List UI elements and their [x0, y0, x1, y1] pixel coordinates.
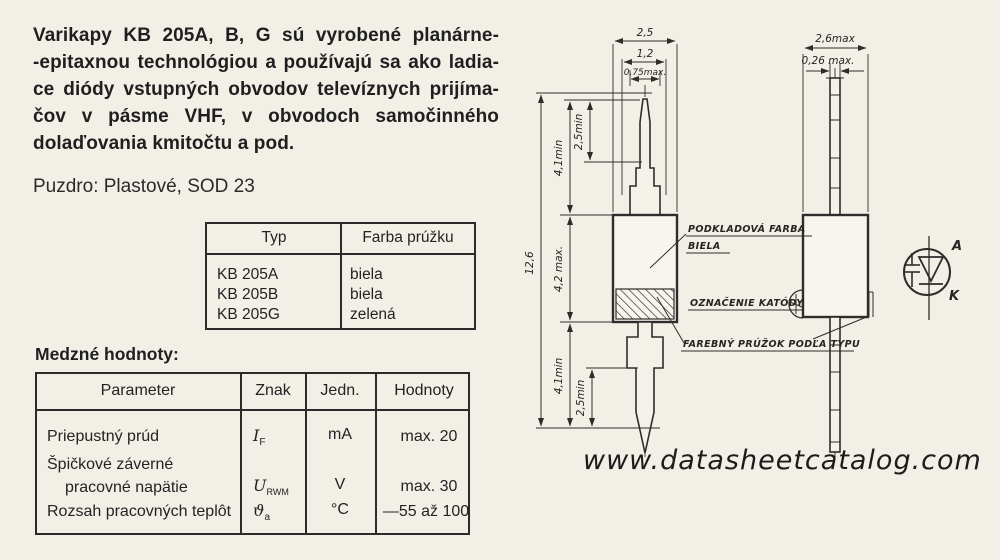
column-header-parameter: Parameter — [101, 382, 176, 400]
table-divider — [207, 253, 474, 255]
label-cathode-mark: OZNAČENIE KATÓDY — [690, 297, 804, 309]
symbol-base: U — [253, 476, 266, 495]
dim-4-1min-bottom: 4,1min — [553, 358, 565, 395]
unit-cell: mA — [328, 426, 352, 444]
cathode-label: K — [949, 289, 960, 304]
label-base-colour-line2: BIELA — [688, 241, 721, 252]
dim-4-2max: 4,2 max. — [553, 246, 565, 292]
symbol-subscript: F — [259, 437, 265, 448]
symbol-subscript: a — [264, 512, 270, 523]
type-table: Typ Farba prúžku KB 205A biela KB 205B b… — [205, 222, 476, 330]
value-cell: max. 30 — [401, 478, 458, 496]
parameter-cell: pracovné napätie — [65, 479, 188, 497]
dim-0-75max: 0,75max. — [624, 68, 667, 78]
stripe-edge — [869, 292, 873, 317]
limits-table: Parameter Znak Jedn. Hodnoty Priepustný … — [35, 372, 470, 535]
table-cell-typ: KB 205B — [217, 286, 278, 304]
dim-12-6: 12,6 — [524, 251, 536, 275]
package-line: Puzdro: Plastové, SOD 23 — [33, 176, 255, 198]
table-divider — [37, 409, 468, 411]
column-header-farba: Farba prúžku — [362, 229, 453, 247]
datasheet-page: Varikapy KB 205A, B, G sú vyrobené planá… — [0, 0, 1000, 560]
column-header-znak: Znak — [255, 382, 291, 400]
front-bottom-lead — [627, 322, 663, 453]
front-view — [613, 85, 677, 458]
front-colour-stripe — [616, 289, 674, 319]
side-top-lead — [830, 78, 840, 215]
table-divider — [340, 224, 342, 328]
watermark: www.datasheetcatalog.com — [583, 445, 982, 476]
diode-triangle — [919, 257, 943, 281]
intro-paragraph: Varikapy KB 205A, B, G sú vyrobené planá… — [33, 22, 499, 157]
anode-label: A — [951, 239, 962, 254]
table-divider — [240, 374, 242, 533]
front-top-lead — [630, 99, 660, 215]
dim-4-1min-top: 4,1min — [553, 140, 565, 177]
table-cell-farba: biela — [350, 286, 383, 304]
symbol-subscript: RWM — [266, 487, 288, 497]
intro-line: Varikapy KB 205A, B, G sú vyrobené planá… — [33, 22, 499, 49]
parameter-cell: Priepustný prúd — [47, 428, 159, 446]
side-bottom-lead — [830, 317, 840, 452]
intro-line: čov v pásme VHF, v obvodoch samočinného — [33, 103, 499, 130]
side-view — [789, 68, 873, 458]
label-colour-stripe: FAREBNÝ PRÚŽOK PODĽA TYPU — [683, 338, 860, 350]
dim-2-5min-bottom: 2,5min — [575, 380, 587, 417]
dim-0-26max: 0,26 max. — [802, 55, 855, 67]
intro-line: ce diódy vstupných obvodov televíznych p… — [33, 76, 499, 103]
table-divider — [375, 374, 377, 533]
value-cell: max. 20 — [401, 428, 458, 446]
intro-line: dolaďovania kmitočtu a pod. — [33, 130, 499, 157]
dim-2-6max: 2,6max — [815, 33, 855, 45]
value-cell: —55 až 100 — [383, 503, 469, 521]
dim-2-5: 2,5 — [637, 27, 654, 39]
limits-heading: Medzné hodnoty: — [35, 344, 179, 365]
table-cell-farba: biela — [350, 266, 383, 284]
column-header-hodnoty: Hodnoty — [394, 382, 454, 400]
symbol-cell: URWM — [253, 476, 289, 497]
table-cell-typ: KB 205A — [217, 266, 278, 284]
dim-2-5min-top: 2,5min — [573, 114, 585, 151]
symbol-base: ϑ — [253, 501, 264, 520]
parameter-cell: Rozsah pracovných teplôt — [47, 503, 231, 521]
table-cell-farba: zelená — [350, 306, 396, 324]
package-drawing: 12,6 4,1min 4,2 max. 4,1min 2,5min 2,5mi… — [500, 0, 1000, 560]
intro-line: -epitaxnou technológiou a používajú sa a… — [33, 49, 499, 76]
table-divider — [305, 374, 307, 533]
table-cell-typ: KB 205G — [217, 306, 280, 324]
column-header-typ: Typ — [262, 229, 287, 247]
column-header-jedn: Jedn. — [320, 382, 359, 400]
label-base-colour-line1: PODKLADOVÁ FARBA — [688, 223, 806, 235]
symbol-cell: IF — [253, 426, 265, 448]
dim-1-2: 1,2 — [637, 48, 654, 60]
parameter-cell: Špičkové záverné — [47, 456, 173, 474]
side-body — [803, 215, 868, 317]
symbol-cell: ϑa — [253, 501, 270, 523]
varicap-symbol: A K — [904, 236, 962, 320]
unit-cell: °C — [331, 501, 349, 519]
unit-cell: V — [335, 476, 346, 494]
